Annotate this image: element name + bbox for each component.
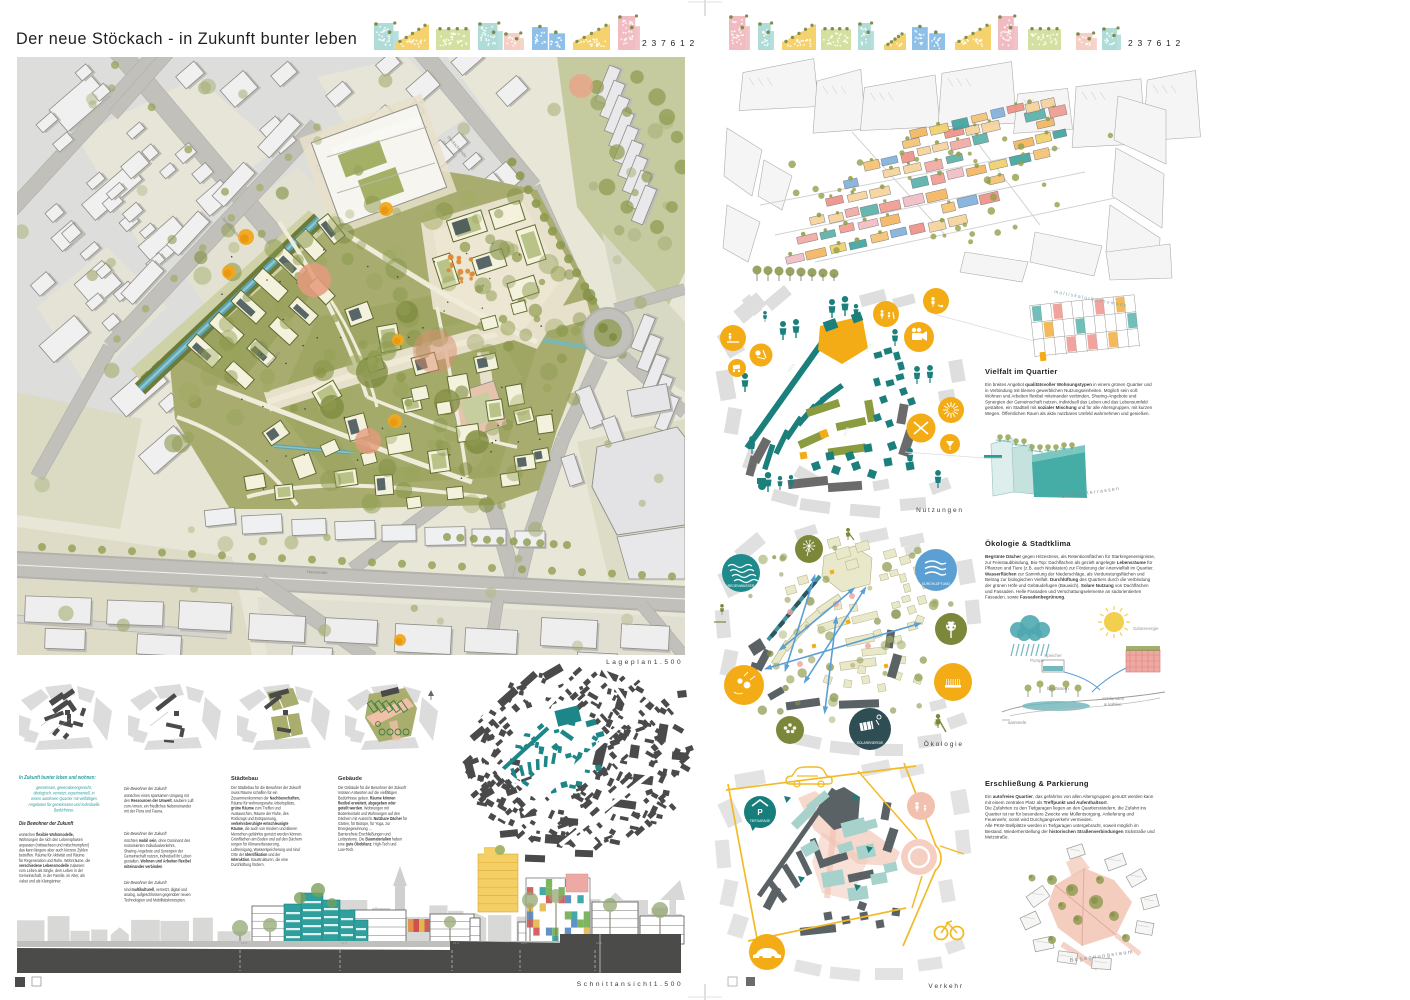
svg-text:S c h n i t t a n s i c h t: S c h n i t t a n s i c h t 1 . 5 0 0 bbox=[577, 981, 681, 988]
svg-text:L a g e p l a n 1 . 5 0 0: L a g e p l a n 1 . 5 0 0 bbox=[606, 659, 681, 666]
svg-text:Ein breites Angebot qualitätsv: Ein breites Angebot qualitätsvoller Wohn… bbox=[985, 382, 1152, 387]
svg-text:Die Bewohner der Zukunft: Die Bewohner der Zukunft bbox=[124, 831, 167, 837]
svg-text:Wohnen und Arbeiten flexibel m: Wohnen und Arbeiten flexibel miteinander… bbox=[985, 393, 1137, 398]
svg-text:verdunsten: verdunsten bbox=[1102, 696, 1125, 701]
svg-text:Pflanzen und Tiere (z.B. auch: Pflanzen und Tiere (z.B. auch Nistkästen… bbox=[985, 565, 1154, 570]
svg-text:Die Zufahrten zu den Tiefgarag: Die Zufahrten zu den Tiefgaragen liegen … bbox=[985, 805, 1147, 810]
svg-text:Gebäude: Gebäude bbox=[338, 776, 362, 782]
svg-text:12.0: 12.0 bbox=[453, 941, 459, 945]
svg-text:Quartier ist nur für besondere: Quartier ist nur für besondere Zwecke wi… bbox=[985, 811, 1134, 816]
svg-text:Vielfalt im Quartier: Vielfalt im Quartier bbox=[985, 367, 1058, 376]
svg-text:Ökologie & Stadtklima: Ökologie & Stadtklima bbox=[985, 539, 1071, 548]
svg-text:gestalten, ein Stadtteil mit s: gestalten, ein Stadtteil mit sozialer Mi… bbox=[985, 405, 1153, 410]
svg-text:12.0: 12.0 bbox=[596, 941, 602, 945]
svg-text:KITA: KITA bbox=[787, 362, 796, 372]
svg-text:12.0: 12.0 bbox=[521, 941, 527, 945]
svg-text:Wasserflächen zur Sammlung der: Wasserflächen zur Sammlung der Niedersch… bbox=[985, 571, 1145, 576]
svg-text:P: P bbox=[757, 808, 763, 817]
svg-text:DURCHLÜFTUNG: DURCHLÜFTUNG bbox=[922, 582, 951, 586]
svg-text:Die Bewohner der Zukunft: Die Bewohner der Zukunft bbox=[124, 786, 167, 792]
svg-text:REGENWASSER: REGENWASSER bbox=[728, 584, 755, 588]
svg-text:Ö k o l o g i e: Ö k o l o g i e bbox=[924, 740, 963, 748]
svg-text:Technologien und Mobilitätskon: Technologien und Mobilitätskonzepten. bbox=[124, 897, 186, 903]
svg-text:Die Bewohner der Zukunft: Die Bewohner der Zukunft bbox=[19, 821, 74, 828]
svg-text:mit der Flora und Fauna.: mit der Flora und Fauna. bbox=[124, 808, 163, 814]
svg-text:Ein autofreies Quartier, das g: Ein autofreies Quartier, das gefahrlos v… bbox=[985, 794, 1154, 799]
svg-text:Pumpe: Pumpe bbox=[1030, 658, 1045, 663]
svg-text:Beitrag zur biologischen Vielf: Beitrag zur biologischen Vielfalt. Durch… bbox=[985, 577, 1150, 582]
svg-text:TIEFGARAGE: TIEFGARAGE bbox=[750, 819, 771, 823]
svg-text:Solarenergie: Solarenergie bbox=[1133, 626, 1159, 631]
svg-text:& kühlen: & kühlen bbox=[1104, 702, 1122, 707]
svg-text:und Fassaden. Helle Fassaden u: und Fassaden. Helle Fassaden und Verscha… bbox=[985, 589, 1142, 594]
svg-text:Die Bewohner der Zukunft: Die Bewohner der Zukunft bbox=[124, 880, 167, 886]
svg-text:Begrünte Dächer gegen Hitzestr: Begrünte Dächer gegen Hitzestress, als R… bbox=[985, 554, 1155, 559]
svg-text:12.0: 12.0 bbox=[241, 941, 247, 945]
svg-text:In Zukunft bunter leben und wo: In Zukunft bunter leben und wohnen: bbox=[19, 775, 96, 782]
svg-text:Feuerwehr, somit wird Durchgan: Feuerwehr, somit wird Durchgangsverkehr … bbox=[985, 817, 1093, 822]
svg-text:Metzstraße.: Metzstraße. bbox=[985, 834, 1009, 839]
svg-text:Städtebau: Städtebau bbox=[231, 776, 259, 782]
svg-text:zur Feinstaubbindung, Bio-Top:: zur Feinstaubbindung, Bio-Top: Dachfläch… bbox=[985, 560, 1153, 565]
svg-text:miteinander verbinden: miteinander verbinden bbox=[124, 863, 163, 869]
svg-text:der grünen Höfe und Gebäudefug: der grünen Höfe und Gebäudefugen (Bauwic… bbox=[985, 583, 1149, 588]
svg-text:sammeln: sammeln bbox=[1008, 720, 1027, 725]
svg-text:2 3 7 6 1 2: 2 3 7 6 1 2 bbox=[642, 38, 695, 48]
svg-text:Alle PKW-Stellplätze werden in: Alle PKW-Stellplätze werden in Tiefgarag… bbox=[985, 823, 1139, 828]
svg-text:mit einem zentralen Platz als: mit einem zentralen Platz als Treffpunkt… bbox=[985, 800, 1108, 805]
svg-text:in Verbindung mit kleinen gewe: in Verbindung mit kleinen gewerblichen N… bbox=[985, 388, 1138, 393]
svg-text:SOLARENERGIE: SOLARENERGIE bbox=[857, 741, 884, 745]
svg-text:Der neue Stöckach - in Zukunft: Der neue Stöckach - in Zukunft bunter le… bbox=[16, 30, 357, 48]
svg-text:Speicher: Speicher bbox=[1044, 653, 1062, 658]
svg-text:Bestand. Wiederherstellung der: Bestand. Wiederherstellung der historisc… bbox=[985, 829, 1155, 834]
svg-text:V e r k e h r: V e r k e h r bbox=[928, 983, 962, 990]
svg-text:N u t z u n g e n: N u t z u n g e n bbox=[916, 507, 962, 514]
svg-text:Erschließung & Parkierung: Erschließung & Parkierung bbox=[985, 779, 1089, 788]
svg-text:Bedürfnisse.: Bedürfnisse. bbox=[54, 807, 74, 813]
svg-text:2 3 7 6 1 2: 2 3 7 6 1 2 bbox=[1128, 38, 1181, 48]
svg-text:Asket und als Kleingärtner.: Asket und als Kleingärtner. bbox=[19, 878, 62, 884]
svg-text:Durchlüftung fördern.: Durchlüftung fördern. bbox=[231, 862, 265, 868]
svg-text:Fassaden, sowie Fassadenbegrün: Fassaden, sowie Fassadenbegrünung. bbox=[985, 594, 1065, 599]
svg-text:Wegen. Öffentlichen Raum als a: Wegen. Öffentlichen Raum als aktiv nutzb… bbox=[985, 410, 1150, 416]
svg-text:12.0: 12.0 bbox=[341, 941, 347, 945]
svg-text:bewässern: bewässern bbox=[1047, 686, 1069, 691]
svg-text:Low-Tech.: Low-Tech. bbox=[338, 846, 354, 852]
svg-text:Synergien der Gemeinschaft nut: Synergien der Gemeinschaft nutzen, indiv… bbox=[985, 399, 1148, 404]
